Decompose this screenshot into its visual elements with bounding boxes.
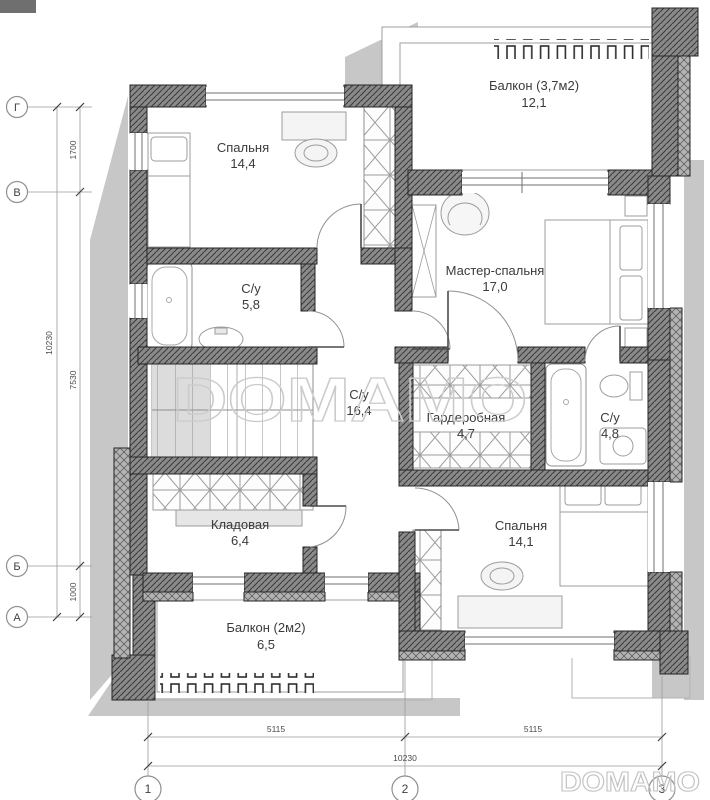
axis-col-2: 2 [402, 782, 409, 796]
watermark-corner: DOMAMO [560, 766, 700, 797]
desk [458, 596, 562, 628]
room-area: 17,0 [482, 279, 507, 294]
room-area: 6,5 [257, 637, 275, 652]
wall-insulation [143, 592, 193, 601]
dim-bottom-seg-2: 5115 [524, 724, 543, 734]
wall-segment [408, 170, 462, 195]
door-bathroom-right [585, 326, 620, 361]
wall-segment [130, 107, 147, 133]
window-left-1 [130, 133, 147, 170]
room-area: 5,8 [242, 297, 260, 312]
room-area: 6,4 [231, 533, 249, 548]
wall-insulation [670, 572, 682, 632]
wall-corner-block [652, 8, 698, 56]
dim-bottom-total: 10230 [393, 753, 417, 763]
axis-row-g: Г [14, 102, 20, 114]
wall-corner-block [112, 655, 155, 700]
shadow-right [684, 160, 704, 700]
bathtub [546, 364, 586, 466]
wall-segment [130, 85, 206, 107]
wardrobe-cabinet [364, 107, 395, 248]
balcony-door-storage [193, 571, 244, 592]
room-name: Балкон (3,7м2) [489, 78, 579, 93]
dim-left-seg-1: 1700 [68, 140, 78, 159]
watermark-center: DOMAMO [173, 366, 528, 435]
wall-segment [399, 532, 415, 635]
furniture-bedroom-bottom [413, 478, 648, 630]
wall-segment [303, 547, 317, 573]
wall-segment [303, 474, 317, 506]
room-name: Мастер-спальня [446, 263, 545, 278]
furniture-bathroom-right [546, 364, 646, 466]
pillow [620, 276, 642, 320]
room-name: Кладовая [211, 517, 269, 532]
wall-segment [399, 470, 648, 486]
wall-insulation [114, 448, 130, 658]
door-wardrobe [448, 291, 518, 361]
window-bedroom-top [206, 87, 344, 105]
room-name: Спальня [495, 518, 547, 533]
balcony-door-master [462, 172, 608, 193]
room-label-bedroom-bottom: Спальня 14,1 [495, 518, 547, 549]
toilet-bowl [600, 375, 628, 397]
storage-shelves [153, 474, 313, 510]
wall-segment [138, 347, 317, 364]
door-bathroom-top [308, 311, 344, 347]
balcony-top-railing [494, 39, 649, 59]
room-name: Балкон (2м2) [226, 620, 305, 635]
room-label-storage: Кладовая 6,4 [211, 517, 269, 548]
balcony-bottom-railing [160, 673, 314, 693]
armchair [441, 191, 489, 235]
window-master-right [648, 204, 670, 308]
axis-row-a: А [13, 612, 21, 624]
wall-fragment-corner [0, 0, 36, 13]
balcony-top-structure [382, 27, 652, 170]
chair [481, 562, 523, 590]
floor-plan-drawing: 10230 1700 7530 1000 5115 5115 10230 Г В… [0, 0, 710, 800]
wall-corner-block [660, 631, 688, 674]
room-label-master-bedroom: Мастер-спальня 17,0 [446, 263, 545, 294]
wall-segment [518, 347, 585, 363]
wall-insulation [399, 651, 465, 660]
wall-segment [531, 363, 545, 470]
furniture-bathroom-top [147, 262, 243, 351]
wall-segment [648, 572, 670, 632]
room-name: Спальня [217, 140, 269, 155]
door-bedroom-top [317, 204, 361, 248]
wall-segment [395, 248, 412, 311]
room-label-bathroom-right: С/у 4,8 [600, 410, 620, 441]
wall-segment [301, 264, 315, 311]
desk [282, 112, 346, 140]
window-left-2 [130, 284, 147, 318]
axis-row-v: В [13, 187, 20, 199]
wall-segment [361, 248, 395, 264]
room-area: 14,4 [230, 156, 255, 171]
wall-segment [648, 308, 670, 360]
wall-segment [130, 457, 317, 474]
wall-segment [130, 170, 147, 284]
wall-segment [652, 56, 678, 176]
wall-insulation [244, 592, 325, 601]
dim-left-seg-3: 1000 [68, 582, 78, 601]
sink-tap [215, 328, 227, 334]
furniture-bedroom-top [148, 107, 395, 248]
window-bedroom-bottom [465, 633, 614, 649]
axis-row-b: Б [13, 561, 20, 573]
dim-left-seg-2: 7530 [68, 370, 78, 389]
dim-left-total: 10230 [44, 331, 54, 355]
wall-segment [143, 573, 193, 592]
wall-segment [648, 176, 670, 204]
wall-segment [608, 170, 652, 195]
axis-markers-left: Г В Б А [7, 97, 28, 628]
axis-col-1: 1 [145, 782, 152, 796]
wall-segment [344, 85, 412, 107]
wall-insulation [678, 56, 690, 176]
pillow [151, 137, 187, 161]
room-name: С/у [600, 410, 620, 425]
toilet-tank [630, 372, 642, 400]
nightstand [625, 328, 647, 348]
nightstand [625, 196, 647, 216]
door-master-bedroom [412, 311, 450, 349]
room-area: 14,1 [508, 534, 533, 549]
chair [295, 139, 337, 167]
wall-segment [648, 360, 670, 482]
room-name: С/у [241, 281, 261, 296]
room-label-bedroom-top: Спальня 14,4 [217, 140, 269, 171]
pillow [620, 226, 642, 270]
wall-segment [620, 347, 648, 363]
window-bedroom-bottom-right [648, 482, 670, 572]
window-hall-bottom [325, 571, 368, 592]
dim-bottom-seg-1: 5115 [267, 724, 286, 734]
door-bedroom-bottom [415, 488, 459, 530]
wall-insulation [670, 308, 682, 482]
wall-segment [244, 573, 325, 592]
room-area: 12,1 [521, 95, 546, 110]
door-storage [310, 506, 346, 547]
wall-segment [399, 631, 465, 651]
room-label-bathroom-top: С/у 5,8 [241, 281, 261, 312]
floor-plan-page: 10230 1700 7530 1000 5115 5115 10230 Г В… [0, 0, 710, 800]
wall-segment [147, 248, 317, 264]
room-area: 4,8 [601, 426, 619, 441]
